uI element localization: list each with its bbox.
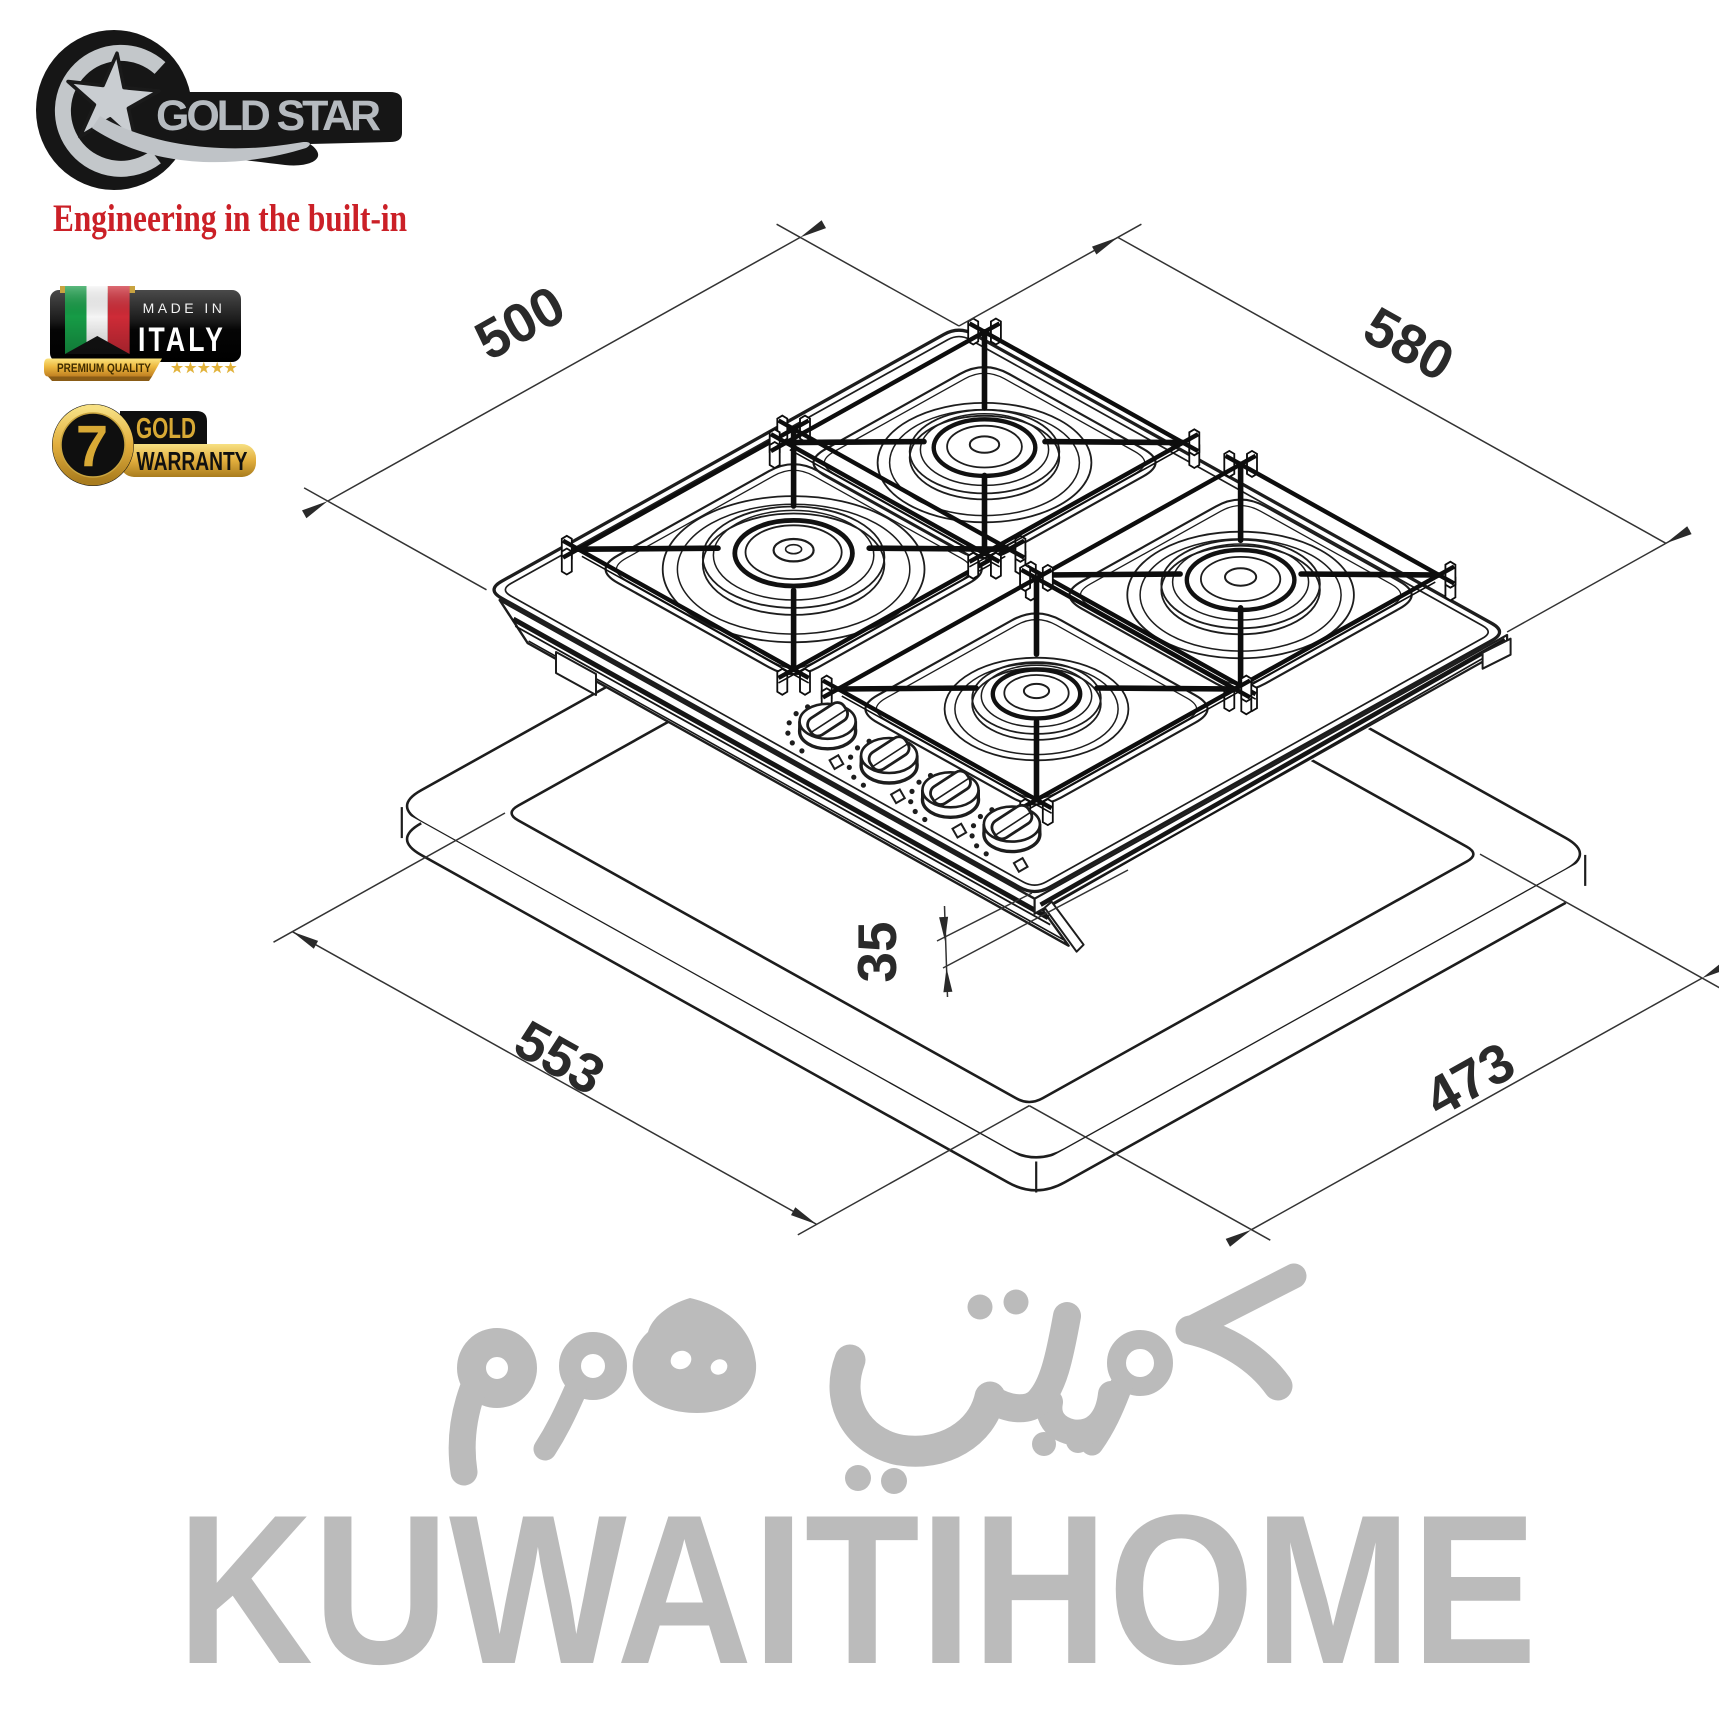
svg-text:KUWAITIHOME: KUWAITIHOME (177, 1471, 1537, 1709)
svg-text:GOLD: GOLD (136, 413, 196, 445)
svg-text:ITALY: ITALY (138, 321, 226, 359)
svg-text:MADE IN: MADE IN (143, 300, 226, 316)
svg-text:GOLD STAR: GOLD STAR (156, 92, 381, 140)
svg-text:7: 7 (76, 414, 108, 479)
svg-text:PREMIUM QUALITY: PREMIUM QUALITY (57, 363, 151, 375)
svg-text:35: 35 (846, 921, 908, 982)
svg-text:WARRANTY: WARRANTY (137, 446, 248, 476)
svg-text:Engineering in the built-in: Engineering in the built-in (53, 197, 407, 240)
